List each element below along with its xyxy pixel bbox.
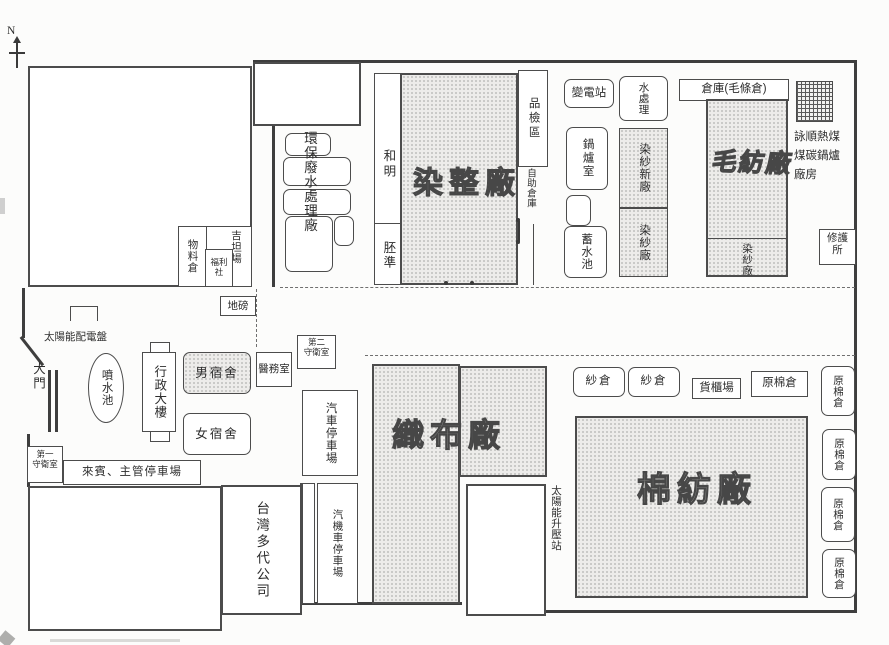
boundary-wall-inner-left [272, 126, 275, 287]
guard-house-1-line2: 守衛室 [28, 460, 62, 470]
wastewater-box-5 [334, 216, 354, 246]
factory-site-plan: N 吉坦場 物料倉 福利社 地磅 太陽能配電盤 大門 第一 守衛室 來賓、主管停… [0, 0, 889, 645]
water-treatment: 水處理 [619, 76, 668, 121]
car-motorcycle-parking: 汽機車停車場 [317, 483, 358, 604]
building-unlabeled-north-small [253, 62, 361, 126]
solar-boost-station-label: 太陽能升壓站 [549, 485, 564, 563]
raw-cotton-warehouse-east-4: 原棉倉 [822, 549, 856, 598]
ibeam-dot-bottom [516, 240, 520, 244]
dashed-line-upper [280, 287, 855, 288]
wool-mill-divider [708, 238, 786, 239]
car-parking: 汽車停車場 [302, 390, 358, 476]
strip-line [533, 224, 534, 285]
north-arrow-icon [9, 36, 25, 70]
repair-station: 修護 所 [819, 229, 856, 265]
admin-building: 行政大樓 [142, 352, 176, 432]
raw-cotton-warehouse-east-1: 原棉倉 [821, 366, 855, 416]
yarn-dyeing-mill: 染紗廠 [619, 208, 668, 277]
coal-boiler-note-line2: 煤碳鍋爐 [794, 147, 874, 166]
medical-room: 醫務室 [256, 352, 292, 387]
coal-boiler-grid-icon [796, 81, 833, 122]
cotton-spinning-mill-label: 棉紡廠 [637, 462, 757, 511]
door-dot-2 [470, 281, 474, 285]
ibeam-dot-top [516, 218, 520, 222]
boundary-wall-west-upper [22, 288, 25, 338]
gate-bar-right [55, 370, 58, 432]
weaving-mill-main [372, 364, 460, 604]
raw-cotton-warehouse-east-2: 原棉倉 [822, 429, 856, 480]
coal-boiler-note-line1: 詠順熱煤 [794, 128, 874, 147]
wool-spinning-mill-label: 毛紡廠 [709, 148, 795, 180]
female-dormitory: 女宿舍 [183, 413, 251, 455]
repair-station-line2: 所 [820, 244, 855, 256]
door-dot-1 [444, 281, 448, 285]
guard-house-2-line2: 守衛室 [298, 348, 335, 358]
scan-smudge-corner [0, 630, 15, 645]
male-dormitory: 男宿舍 [183, 352, 251, 394]
dashed-line-vertical [256, 289, 257, 347]
wastewater-treatment-label: 環保廢水處理廠 [299, 131, 319, 273]
weighbridge: 地磅 [220, 296, 256, 316]
warehouse-wool-tops: 倉庫(毛條倉) [679, 79, 789, 101]
reservoir: 蓄水池 [564, 226, 607, 278]
yarn-warehouse-2: 紗倉 [628, 367, 680, 397]
welfare-shop: 福利社 [205, 249, 233, 287]
heming-divider [375, 223, 400, 224]
self-service-warehouse-label: 自助倉庫 [523, 168, 537, 224]
building-unlabeled-south [466, 484, 546, 616]
guard-house-2: 第二 守衛室 [297, 335, 336, 369]
gate-bar-left [48, 370, 51, 432]
greige-prep-label: 胚準 [381, 229, 395, 281]
yarn-dyeing-new-mill: 染紗新廠 [619, 128, 668, 208]
raw-cotton-warehouse-east-3: 原棉倉 [821, 487, 855, 542]
boiler-room: 鍋爐室 [566, 127, 608, 190]
scan-smudge-bottom [50, 639, 180, 642]
dashed-line-lower [365, 355, 855, 356]
repair-station-line1: 修護 [820, 232, 855, 244]
inspection-area: 品檢區 [518, 70, 548, 167]
wool-mill-yarn-dyeing-label: 染紗廠 [741, 241, 753, 277]
coal-boiler-note-line3: 廠房 [794, 166, 874, 185]
wool-spinning-mill: 毛紡廠 染紗廠 [706, 99, 788, 277]
container-yard: 貨櫃場 [692, 378, 741, 399]
fountain: 噴水池 [88, 353, 124, 423]
guard-house-1: 第一 守衛室 [27, 446, 63, 483]
substation: 變電站 [564, 79, 614, 108]
coal-boiler-note: 詠順熱煤 煤碳鍋爐 廠房 [794, 128, 874, 185]
heming-column: 和明 胚準 [374, 73, 401, 285]
boundary-wall-bottom-right [546, 610, 857, 613]
solar-distribution-panel-label: 太陽能配電盤 [44, 329, 107, 344]
building-unlabeled-southwest [28, 486, 222, 631]
taiwan-company-building: 台灣多代公司 [221, 485, 302, 615]
weaving-mill-label: 織布廠 [392, 410, 506, 456]
main-gate-label: 大門 [29, 362, 48, 414]
vip-parking: 來賓、主管停車場 [63, 460, 201, 485]
materials-warehouse: 物料倉 [178, 226, 207, 287]
heming-label: 和明 [381, 109, 395, 219]
raw-cotton-warehouse: 原棉倉 [751, 371, 808, 397]
scan-smudge-left [0, 198, 5, 214]
small-empty-box [566, 195, 591, 226]
ibeam-line [518, 221, 520, 242]
yarn-warehouse-1: 紗倉 [573, 367, 625, 397]
solar-panel-bracket-icon [70, 306, 98, 321]
dyeing-finishing-mill-label: 染整廠 [413, 158, 521, 202]
strip-unlabeled [300, 483, 315, 604]
